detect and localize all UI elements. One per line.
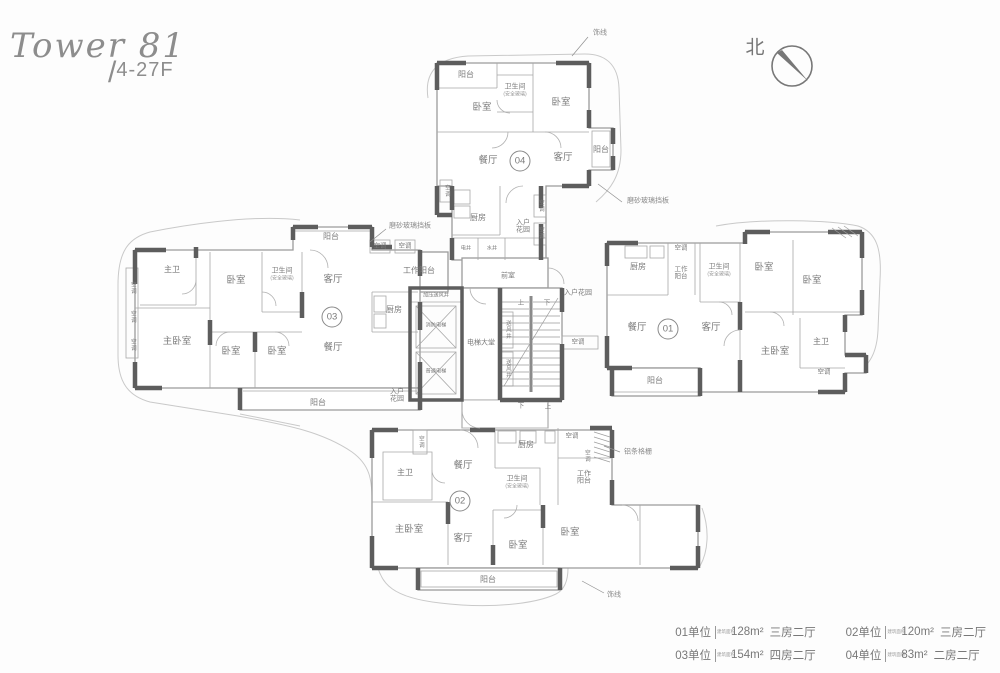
room-label-pressure-shaft: 加压送风井 xyxy=(423,293,449,298)
ac-platform-label: 空调 xyxy=(566,434,579,441)
room-label-air-shaft: 送风井 xyxy=(504,359,510,379)
room-label-entry-garden: 入户花园 xyxy=(389,389,405,404)
room-label-master-bath: 主卫 xyxy=(813,338,829,346)
room-label-balcony: 阳台 xyxy=(480,576,496,584)
legend-area: 154m² xyxy=(731,649,764,661)
legend-area-label: 建筑面积 xyxy=(887,652,897,657)
room-label-dining: 餐厅 xyxy=(453,461,472,471)
room-label-entry-garden: 入户花园 xyxy=(515,220,531,235)
room-label-bedroom: 卧室 xyxy=(508,541,527,551)
annotation-frosted-glass: 磨砂玻璃挡板 xyxy=(389,222,431,229)
room-label-elevator-lobby: 电梯大堂 xyxy=(467,339,495,346)
ac-platform-label: 空调 xyxy=(675,246,688,253)
room-label-master-bath: 主卫 xyxy=(397,469,413,477)
annotation-frosted-glass: 磨砂玻璃挡板 xyxy=(627,197,669,204)
ac-platform-label: 空调 xyxy=(417,436,423,449)
room-label-dining: 餐厅 xyxy=(478,156,497,166)
room-label-dining: 餐厅 xyxy=(323,343,342,353)
ac-platform-label: 空调 xyxy=(374,244,387,251)
page-title: Tower 81 /4-27F xyxy=(10,26,186,90)
room-label-balcony: 阳台 xyxy=(593,146,609,154)
unit-02-badge: 02 xyxy=(450,491,471,512)
legend-unit: 01单位 xyxy=(675,624,711,640)
legend: 01单位 建筑面积 128m² 三房二厅 02单位 建筑面积 120m² 三房二… xyxy=(675,624,986,663)
legend-unit: 02单位 xyxy=(846,624,882,640)
ac-platform-label: 空调 xyxy=(537,227,543,240)
room-label-bedroom: 卧室 xyxy=(551,98,570,108)
room-label-bathroom: 卫生间 xyxy=(709,263,730,270)
unit-04-badge: 04 xyxy=(510,151,531,172)
legend-area-label: 建筑面积 xyxy=(717,629,727,634)
legend-divider: 建筑面积 xyxy=(715,649,727,662)
room-label-bedroom: 卧室 xyxy=(560,528,579,538)
legend-divider: 建筑面积 xyxy=(885,649,897,662)
stair-up-label: 上 xyxy=(545,405,552,412)
unit-01-badge: 01 xyxy=(658,319,679,340)
room-label-work-balcony: 工作阳台 xyxy=(403,267,435,275)
legend-area-label: 建筑面积 xyxy=(887,629,897,634)
room-label-dining: 餐厅 xyxy=(627,323,646,333)
north-label: 北 xyxy=(745,33,764,60)
room-label-bedroom: 卧室 xyxy=(267,347,286,357)
room-label-living: 客厅 xyxy=(701,323,720,333)
room-label-kitchen: 厨房 xyxy=(518,441,534,449)
legend-area-label: 建筑面积 xyxy=(717,652,727,657)
room-label-bathroom: 卫生间 xyxy=(505,83,526,90)
legend-area: 120m² xyxy=(901,626,934,638)
room-label-water-shaft: 水井 xyxy=(487,246,497,251)
room-label-bathroom-note: (安全玻璃) xyxy=(505,484,528,489)
room-label-bedroom: 卧室 xyxy=(226,276,245,286)
ac-platform-label: 空调 xyxy=(443,185,449,198)
legend-area: 83m² xyxy=(901,649,927,661)
legend-type: 三房二厅 xyxy=(770,624,816,640)
room-label-kitchen: 厨房 xyxy=(630,263,646,271)
room-label-bedroom: 卧室 xyxy=(754,263,773,273)
stair-down-label: 下 xyxy=(518,404,525,411)
unit-03-badge: 03 xyxy=(322,307,343,328)
ac-platform-label: 空调 xyxy=(129,339,135,352)
room-label-balcony: 阳台 xyxy=(647,377,663,385)
stair-down-label: 下 xyxy=(544,301,551,308)
legend-type: 四房二厅 xyxy=(770,647,816,663)
ac-platform-label: 空调 xyxy=(399,244,412,251)
room-label-balcony: 阳台 xyxy=(458,71,474,79)
room-label-kitchen: 厨房 xyxy=(386,306,402,314)
room-label-master-bath: 主卫 xyxy=(164,266,180,274)
room-label-bedroom: 卧室 xyxy=(472,103,491,113)
annotation-trim-line: 饰线 xyxy=(593,29,607,36)
ac-platform-label: 空调 xyxy=(129,311,135,324)
legend-unit: 03单位 xyxy=(675,647,711,663)
ac-platform-label: 空调 xyxy=(129,282,135,295)
room-label-kitchen: 厨房 xyxy=(470,214,486,222)
room-label-master-bedroom: 主卧室 xyxy=(395,525,424,535)
ac-platform-label: 空调 xyxy=(537,200,543,213)
floor-range-value: 4-27F xyxy=(116,59,173,81)
ac-platform-label: 空调 xyxy=(583,450,589,463)
room-label-fire-elevator: 消防电梯 xyxy=(426,323,447,328)
room-label-bathroom: 卫生间 xyxy=(507,475,528,482)
room-label-work-balcony: 工作阳台 xyxy=(674,267,688,281)
room-label-elec-shaft: 电井 xyxy=(461,246,471,251)
room-label-bathroom-note: (安全玻璃) xyxy=(503,92,526,97)
room-label-anteroom: 前室 xyxy=(501,272,515,279)
room-label-bedroom: 卧室 xyxy=(802,276,821,286)
legend-unit: 04单位 xyxy=(846,647,882,663)
stair-up-label: 上 xyxy=(518,301,525,308)
legend-area: 128m² xyxy=(731,626,764,638)
annotation-trim-line: 饰线 xyxy=(607,591,621,598)
room-label-living: 客厅 xyxy=(553,153,572,163)
room-label-air-shaft: 送风井 xyxy=(504,320,510,340)
north-compass-icon xyxy=(772,46,812,86)
legend-divider: 建筑面积 xyxy=(885,626,897,639)
annotation-alum-grille: 铝条格栅 xyxy=(624,448,652,455)
room-label-entry-garden: 入户花园 xyxy=(564,289,592,296)
room-label-master-bedroom: 主卧室 xyxy=(761,347,790,357)
room-label-regular-elevator: 普通电梯 xyxy=(426,369,447,374)
legend-entry-04: 04单位 建筑面积 83m² 二房二厅 xyxy=(846,647,986,663)
legend-divider: 建筑面积 xyxy=(715,626,727,639)
ac-platform-label: 空调 xyxy=(572,340,585,347)
room-label-balcony: 阳台 xyxy=(310,399,326,407)
legend-type: 三房二厅 xyxy=(940,624,986,640)
room-label-balcony: 阳台 xyxy=(323,233,339,241)
room-label-living: 客厅 xyxy=(453,534,472,544)
ac-platform-label: 空调 xyxy=(818,370,831,377)
legend-entry-01: 01单位 建筑面积 128m² 三房二厅 xyxy=(675,624,815,640)
room-label-master-bedroom: 主卧室 xyxy=(163,337,192,347)
room-label-work-balcony: 工作阳台 xyxy=(576,471,592,486)
legend-type: 二房二厅 xyxy=(934,647,980,663)
room-label-bathroom-note: (安全玻璃) xyxy=(270,276,293,281)
legend-entry-02: 02单位 建筑面积 120m² 三房二厅 xyxy=(846,624,986,640)
floorplan-drawing xyxy=(0,0,1000,673)
room-label-bathroom: 卫生间 xyxy=(272,267,293,274)
room-label-bathroom-note: (安全玻璃) xyxy=(707,272,730,277)
room-label-living: 客厅 xyxy=(323,275,342,285)
floorplan-page: Tower 81 /4-27F 北 04 03 01 02 阳台 卧室 卧室 卫… xyxy=(0,0,1000,673)
room-label-bedroom: 卧室 xyxy=(221,347,240,357)
legend-entry-03: 03单位 建筑面积 154m² 四房二厅 xyxy=(675,647,815,663)
